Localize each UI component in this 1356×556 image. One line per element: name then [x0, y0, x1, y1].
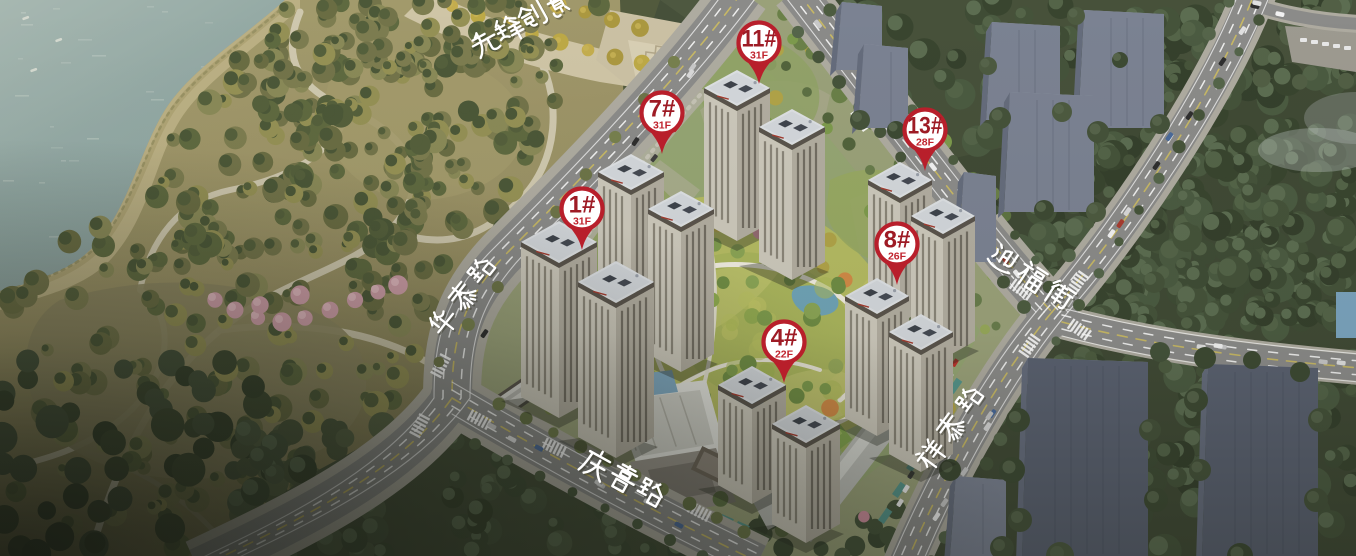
- svg-text:4#: 4#: [771, 325, 798, 352]
- svg-text:11#: 11#: [742, 26, 777, 53]
- svg-text:31F: 31F: [750, 50, 769, 62]
- svg-text:31F: 31F: [653, 120, 672, 132]
- svg-text:1#: 1#: [569, 192, 596, 219]
- svg-text:13#: 13#: [908, 113, 943, 140]
- svg-text:22F: 22F: [775, 349, 794, 361]
- svg-text:8#: 8#: [884, 227, 911, 254]
- svg-text:26F: 26F: [888, 251, 907, 263]
- svg-text:28F: 28F: [916, 137, 935, 149]
- svg-text:7#: 7#: [649, 96, 676, 123]
- svg-text:31F: 31F: [573, 216, 592, 228]
